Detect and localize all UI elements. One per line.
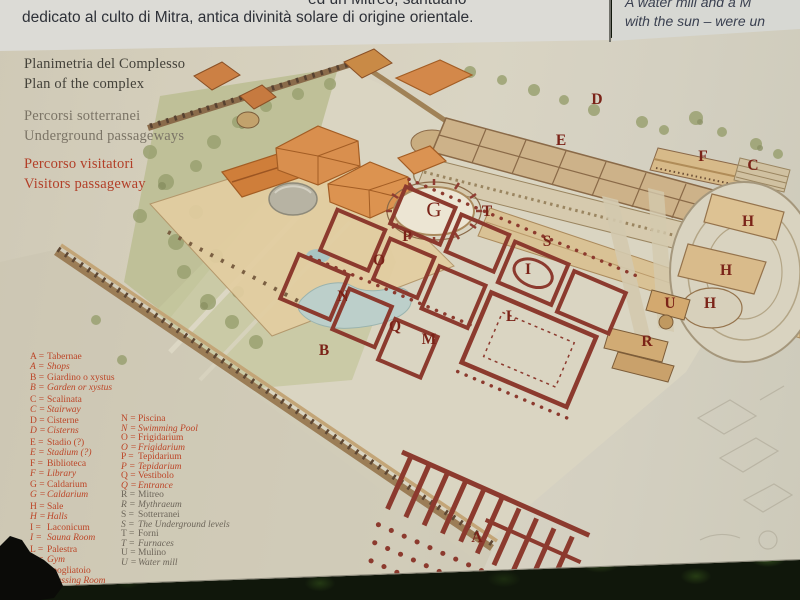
map-marker-U: U <box>664 295 675 313</box>
heading-visitors-it: Percorso visitatori <box>24 154 146 174</box>
legend-entry-N: N =PiscinaN =Swimming Pool <box>121 414 198 434</box>
legend-entry-I: I =LaconicumI =Sauna Room <box>30 523 95 543</box>
legend-entry-F: F =BibliotecaF =Library <box>30 459 86 479</box>
heading-underground: Percorsi sotterranei Underground passage… <box>24 106 184 146</box>
map-marker-L: L <box>506 308 516 326</box>
heading-plan-it: Planimetria del Complesso <box>24 54 185 74</box>
legend-entry-P: P =TepidariumP =Tepidarium <box>121 452 182 472</box>
top-sign-line1: ed un Mitreo, santuario <box>308 0 467 9</box>
legend-entry-Q: Q =VestiboloQ =Entrance <box>121 471 174 491</box>
legend-entry-A: A =TabernaeA =Shops <box>30 352 82 372</box>
map-marker-H: H <box>704 295 716 313</box>
legend-entry-S: S =SotterraneiS =The Underground levels <box>121 510 230 530</box>
legend-entry-H: H =SaleH =Halls <box>30 502 68 522</box>
map-marker-G: G <box>426 198 441 223</box>
top-sign-line2: dedicato al culto di Mitra, antica divin… <box>22 9 473 27</box>
legend-entry-B: B =Giardino o xystusB =Garden or xystus <box>30 373 115 393</box>
map-marker-R: R <box>641 333 652 351</box>
map-marker-F: F <box>698 148 707 166</box>
map-marker-M: M <box>422 331 437 349</box>
map-marker-N: N <box>337 288 348 306</box>
legend-entry-E: E =Stadio (?)E =Stadium (?) <box>30 438 92 458</box>
legend-entry-U: U =MulinoU =Water mill <box>121 548 178 568</box>
legend-entry-G: G =CaldariumG =Caldarium <box>30 480 88 500</box>
heading-plan: Planimetria del Complesso Plan of the co… <box>24 54 185 94</box>
heading-visitors-en: Visitors passageway <box>24 174 146 194</box>
sketch-buildings <box>698 386 792 549</box>
map-marker-H: H <box>742 213 754 231</box>
map-marker-O: O <box>373 252 385 270</box>
top-sign-right-line2: with the sun – were un <box>625 13 765 29</box>
map-marker-H: H <box>720 262 732 280</box>
legend-entry-T: T =ForniT =Furnaces <box>121 529 174 549</box>
heading-visitors: Percorso visitatori Visitors passageway <box>24 154 146 194</box>
map-marker-D: D <box>591 91 602 109</box>
map-marker-B: B <box>319 342 329 360</box>
information-panel: Planimetria del Complesso Plan of the co… <box>0 0 800 600</box>
map-marker-S: S <box>543 233 552 251</box>
map-marker-I: I <box>525 261 531 279</box>
dome <box>269 183 317 215</box>
map-marker-P: P <box>402 228 411 246</box>
legend-entry-D: D =CisterneD =Cisterns <box>30 416 79 436</box>
heading-underground-en: Underground passageways <box>24 126 184 146</box>
map-marker-C: C <box>747 157 758 175</box>
map-marker-Q: Q <box>389 318 401 336</box>
map-marker-T: T <box>482 203 492 221</box>
legend-entry-R: R =MitreoR =Mythraeum <box>121 490 182 510</box>
legend-entry-C: C =ScalinataC =Stairway <box>30 395 82 415</box>
heading-underground-it: Percorsi sotterranei <box>24 106 184 126</box>
map-marker-E: E <box>556 132 566 150</box>
top-sign-right-line1: A water mill and a M <box>625 0 751 10</box>
sign-divider <box>609 0 611 42</box>
map-marker-A: A <box>471 529 482 547</box>
photo-scene: Planimetria del Complesso Plan of the co… <box>0 0 800 600</box>
legend-entry-O: O =FrigidariumO =Frigidarium <box>121 433 185 453</box>
heading-plan-en: Plan of the complex <box>24 74 185 94</box>
